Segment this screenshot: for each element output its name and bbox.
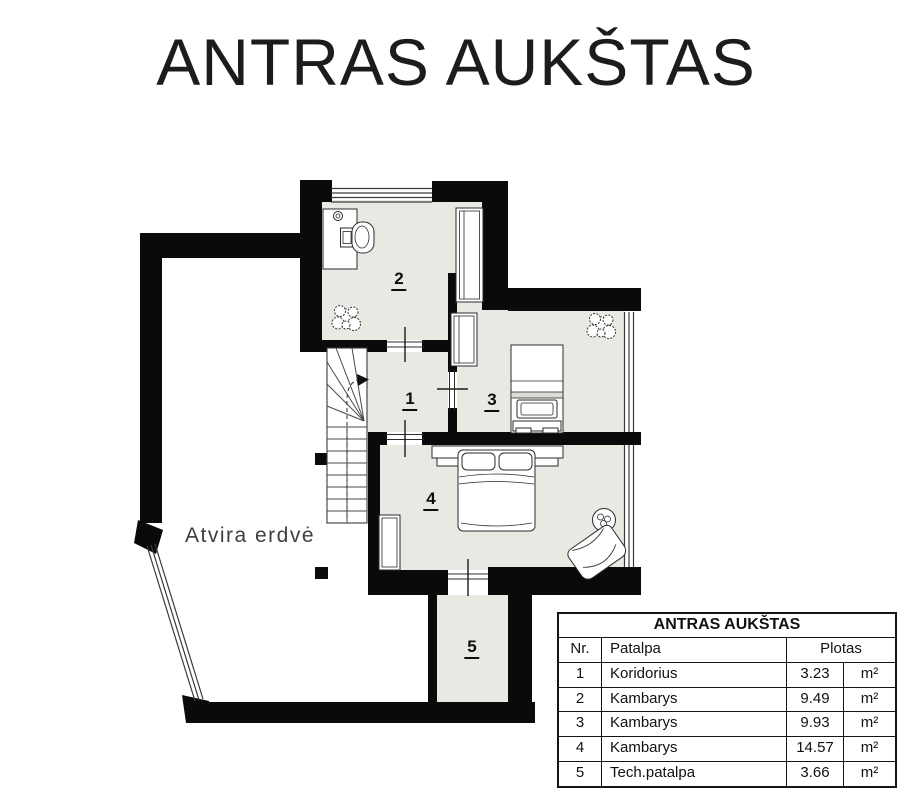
columns bbox=[315, 453, 328, 579]
cell-area: 14.57 bbox=[786, 737, 843, 761]
cell-unit: m² bbox=[843, 762, 895, 786]
cell-unit: m² bbox=[843, 737, 895, 761]
col-header-room: Patalpa bbox=[601, 638, 786, 662]
cell-nr: 1 bbox=[559, 663, 601, 687]
room-label-1: 1 bbox=[402, 390, 417, 411]
cell-room: Kambarys bbox=[601, 737, 786, 761]
legend-table-title: ANTRAS AUKŠTAS bbox=[559, 614, 895, 637]
cell-unit: m² bbox=[843, 712, 895, 736]
cell-room: Koridorius bbox=[601, 663, 786, 687]
legend-table-header-row: Nr. Patalpa Plotas bbox=[559, 637, 895, 662]
cell-room: Tech.patalpa bbox=[601, 762, 786, 786]
table-row: 1 Koridorius 3.23 m² bbox=[559, 662, 895, 687]
room-label-5: 5 bbox=[464, 638, 479, 659]
window-room3-right bbox=[625, 312, 634, 432]
cell-unit: m² bbox=[843, 688, 895, 712]
wardrobe-room2 bbox=[456, 208, 483, 302]
cell-area: 9.93 bbox=[786, 712, 843, 736]
cell-nr: 5 bbox=[559, 762, 601, 786]
cell-nr: 2 bbox=[559, 688, 601, 712]
staircase bbox=[327, 348, 369, 523]
cell-room: Kambarys bbox=[601, 712, 786, 736]
office-chair bbox=[352, 222, 374, 253]
cell-room: Kambarys bbox=[601, 688, 786, 712]
table-row: 3 Kambarys 9.93 m² bbox=[559, 711, 895, 736]
wardrobe-room3 bbox=[451, 313, 477, 366]
col-header-nr: Nr. bbox=[559, 638, 601, 662]
room-label-3: 3 bbox=[484, 391, 499, 412]
legend-table: ANTRAS AUKŠTAS Nr. Patalpa Plotas 1 Kori… bbox=[557, 612, 897, 788]
cell-nr: 4 bbox=[559, 737, 601, 761]
floor-plan-page: ANTRAS AUKŠTAS bbox=[0, 0, 912, 802]
cell-area: 9.49 bbox=[786, 688, 843, 712]
room-label-2: 2 bbox=[391, 270, 406, 291]
plant-room2 bbox=[332, 306, 361, 331]
window-top bbox=[331, 189, 432, 203]
cell-area: 3.23 bbox=[786, 663, 843, 687]
col-header-area: Plotas bbox=[786, 638, 895, 662]
cell-unit: m² bbox=[843, 663, 895, 687]
table-row: 2 Kambarys 9.49 m² bbox=[559, 687, 895, 712]
window-diagonal bbox=[147, 544, 203, 701]
plant-room3 bbox=[587, 314, 616, 339]
open-space-label: Atvira erdvė bbox=[185, 524, 315, 548]
bed-single bbox=[511, 345, 563, 433]
wardrobe-room4 bbox=[379, 515, 400, 570]
cell-nr: 3 bbox=[559, 712, 601, 736]
cell-area: 3.66 bbox=[786, 762, 843, 786]
table-row: 5 Tech.patalpa 3.66 m² bbox=[559, 761, 895, 786]
table-row: 4 Kambarys 14.57 m² bbox=[559, 736, 895, 761]
room-label-4: 4 bbox=[423, 490, 438, 511]
